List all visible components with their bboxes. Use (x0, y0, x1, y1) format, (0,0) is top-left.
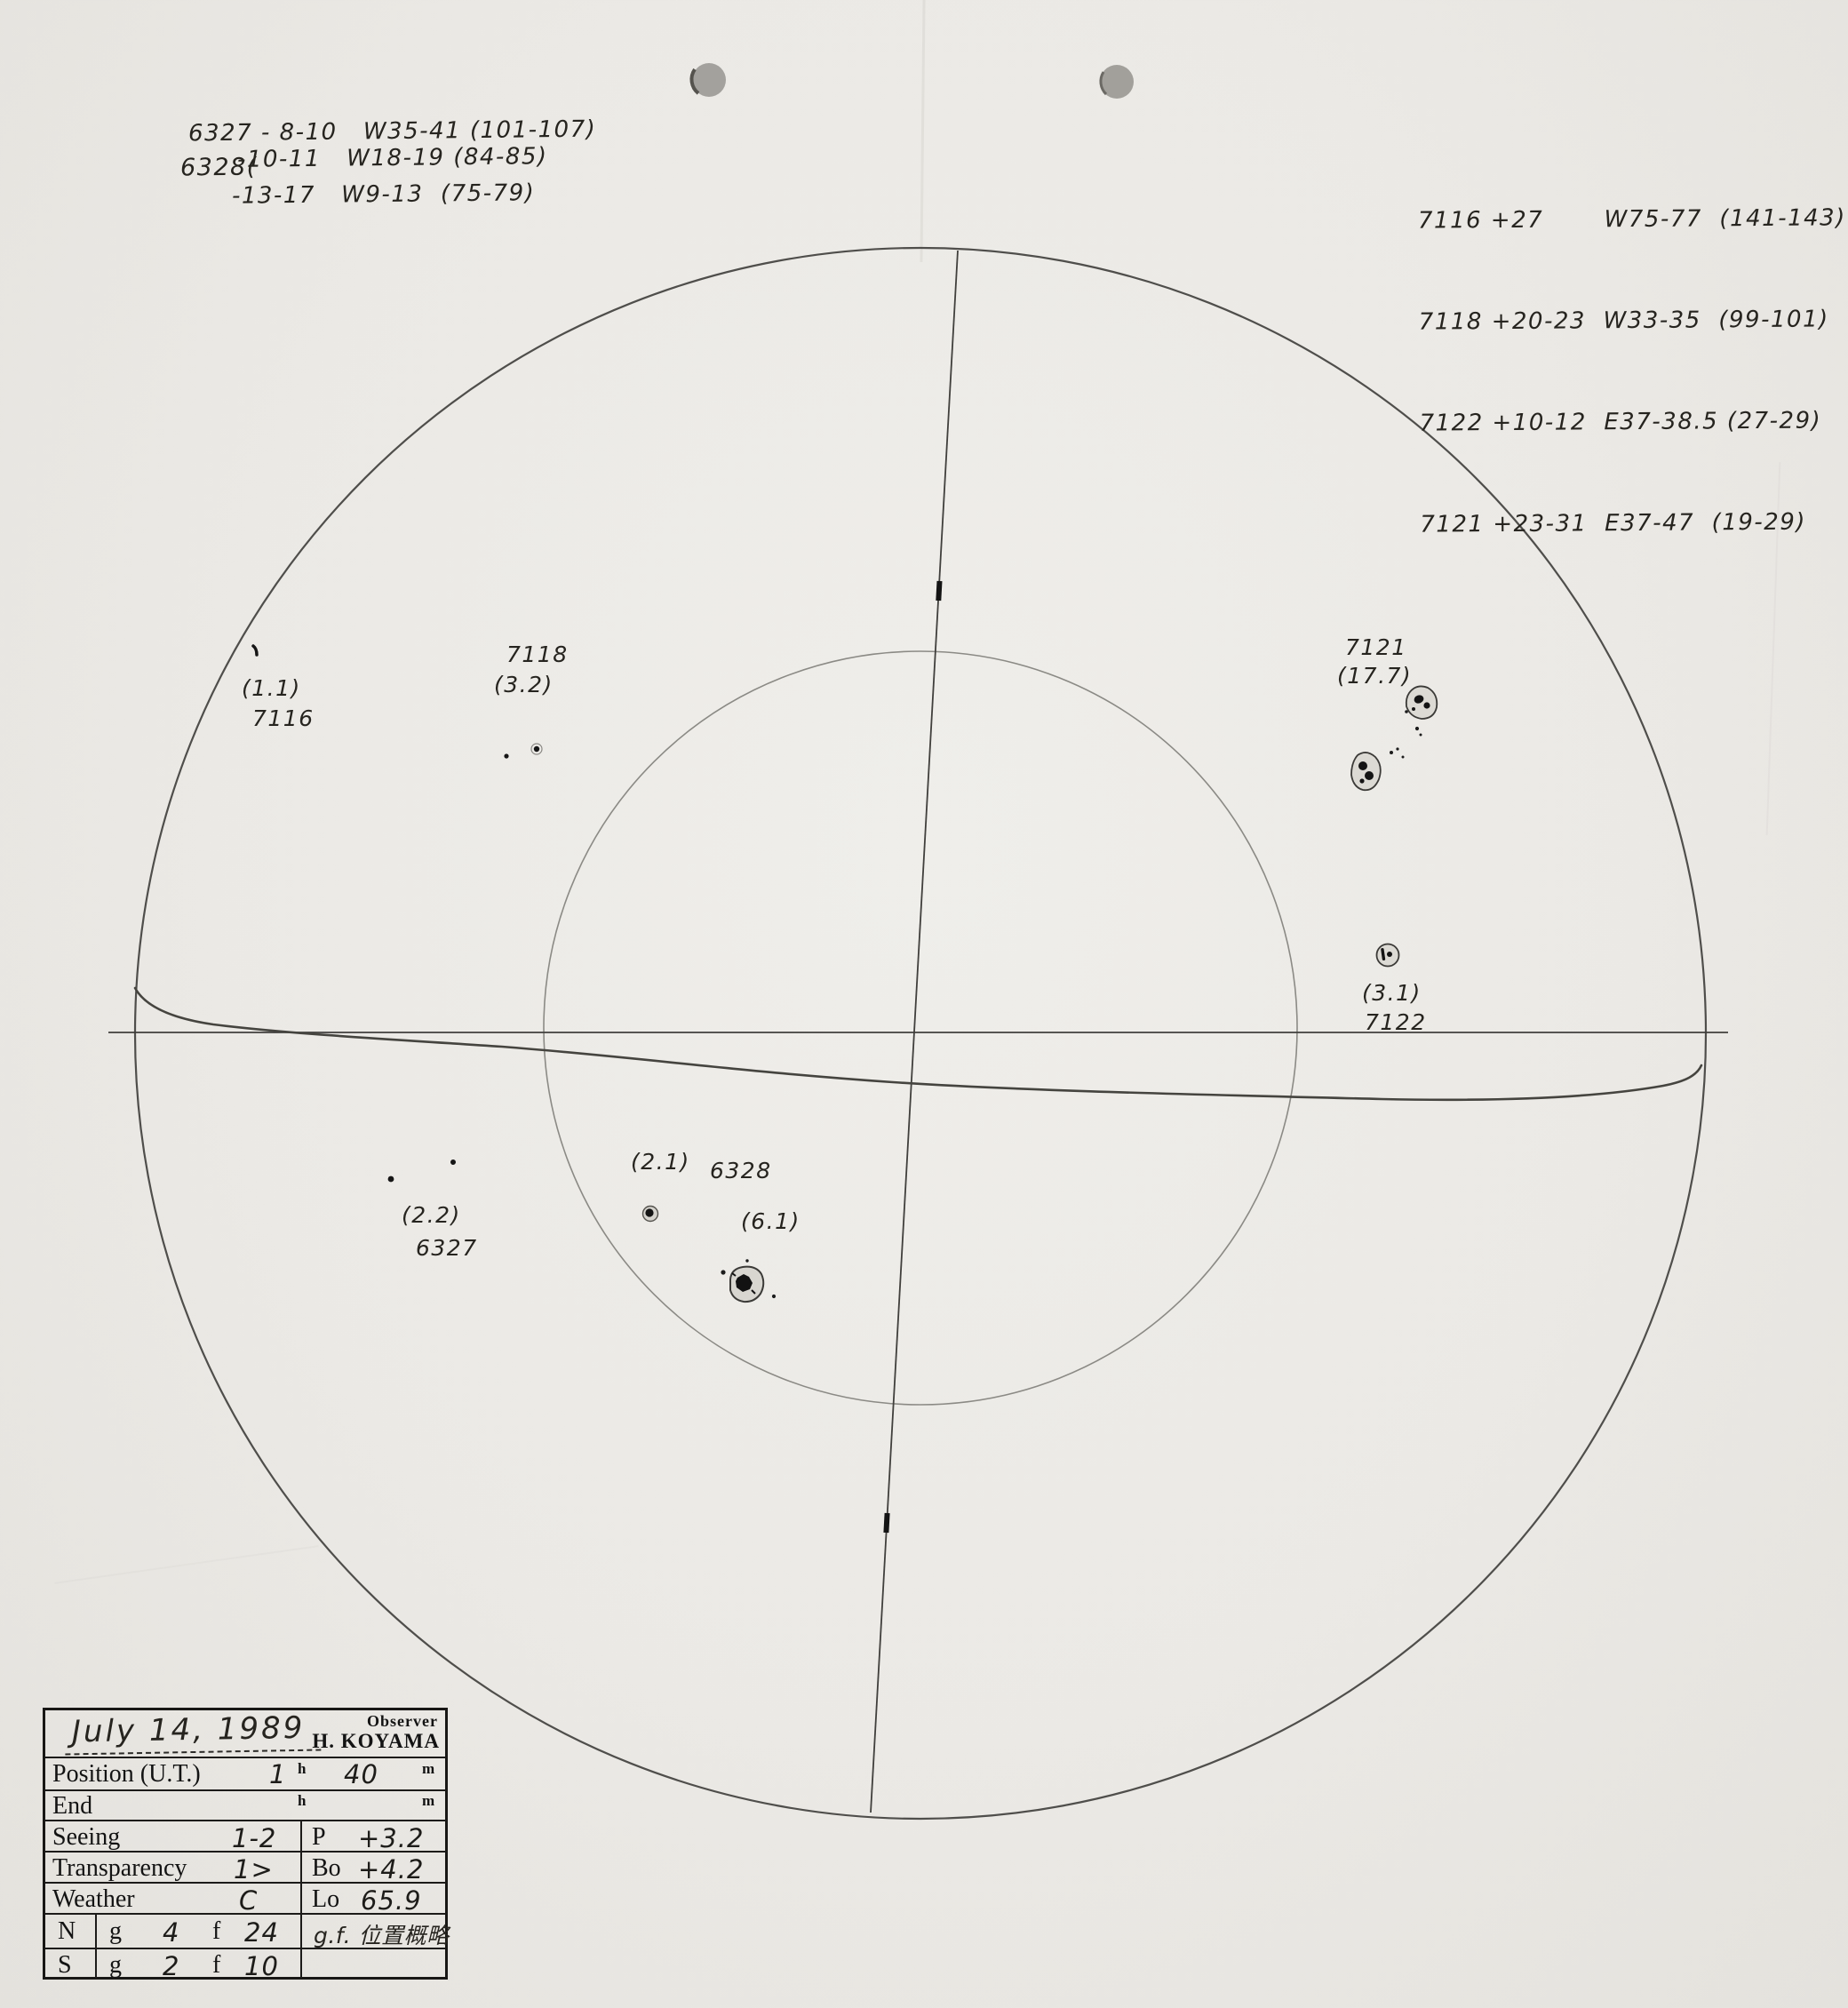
sunspot-group-7118 (504, 744, 542, 759)
observer-name: H. KOYAMA (312, 1730, 440, 1753)
sunspot-group-7121 (1351, 686, 1437, 790)
table-row-south: S g 2 f 10 (45, 1948, 445, 1979)
table-row-weather: Weather C Lo 65.9 (45, 1882, 445, 1913)
date-value: July 14, 1989 (65, 1709, 322, 1755)
table-row-transparency: Transparency 1> Bo +4.2 (45, 1851, 445, 1882)
inner-grid-circle (544, 651, 1297, 1405)
meridian-tick-upper (938, 581, 939, 601)
lo-value: 65.9 (361, 1885, 422, 1916)
end-label: End (52, 1792, 92, 1821)
annotation-line-7118: 7118 +20-23 W33-35 (99-101) (1419, 302, 1847, 339)
spot-id-6328: 6328 (710, 1158, 772, 1183)
table-row-seeing: Seeing 1-2 P +3.2 (45, 1820, 445, 1851)
south-g-label: g (109, 1951, 122, 1980)
spot-id-7121: 7121 (1345, 634, 1407, 660)
south-f-label: f (212, 1951, 220, 1980)
observer-label: Observer (367, 1712, 438, 1731)
spot-count-6327: (2.2) (402, 1202, 461, 1228)
transparency-label: Transparency (52, 1854, 187, 1883)
north-g-value: 4 (163, 1917, 179, 1948)
spot-id-7122: 7122 (1365, 1009, 1427, 1035)
top-right-annotation: 7116 +27 W75-77 (141-143) 7118 +20-23 W3… (1417, 133, 1848, 575)
north-f-label: f (212, 1917, 220, 1946)
weather-label: Weather (52, 1885, 135, 1914)
scanned-sunspot-observation-sheet: { "annotations": { "top_left": { "line1"… (0, 0, 1848, 2008)
meridian-line (871, 251, 958, 1813)
spot-count-7122: (3.1) (1362, 980, 1422, 1006)
position-hour-value: 1 (269, 1759, 286, 1789)
table-row-date: July 14, 1989 Observer H. KOYAMA (45, 1710, 445, 1757)
end-hour-unit: h (298, 1792, 306, 1810)
table-row-end: End h m (45, 1789, 445, 1820)
north-label: N (58, 1917, 76, 1946)
position-label: Position (U.T.) (52, 1760, 201, 1789)
p-label: P (312, 1823, 326, 1852)
annotation-line-6328b: -13-17 W9-13 (75-79) (232, 175, 536, 215)
bo-label: Bo (312, 1854, 341, 1883)
sunspot-group-7122 (1377, 944, 1399, 967)
sunspot-group-7116 (253, 646, 257, 655)
end-minute-unit: m (422, 1792, 434, 1810)
spot-id-7116: 7116 (252, 705, 315, 731)
lo-label: Lo (312, 1885, 339, 1914)
table-divider-main (300, 1820, 302, 1979)
sunspot-group-6327 (388, 1159, 456, 1182)
minute-unit: m (422, 1760, 434, 1778)
spot-id-7118: 7118 (506, 641, 569, 667)
gf-note: g.f. 位置概略 (314, 1918, 450, 1950)
seeing-label: Seeing (52, 1823, 120, 1852)
spot-count2-6328: (6.1) (741, 1208, 801, 1234)
spot-count-7116: (1.1) (242, 675, 301, 701)
annotation-line-7122: 7122 +10-12 E37-38.5 (27-29) (1419, 403, 1847, 440)
south-label: S (58, 1951, 72, 1980)
spot-count-7121: (17.7) (1337, 663, 1412, 689)
table-divider-ns (95, 1913, 97, 1979)
position-minute-value: 40 (344, 1759, 378, 1789)
annotation-line-6328a: -10-11 W18-19 (84-85) (237, 139, 548, 179)
table-row-position: Position (U.T.) 1 h 40 m (45, 1757, 445, 1789)
spot-count-7118: (3.2) (494, 672, 554, 697)
weather-value: C (239, 1885, 258, 1916)
meridian-tick-lower (886, 1513, 887, 1533)
north-f-value: 24 (244, 1917, 279, 1948)
annotation-line-7116: 7116 +27 W75-77 (141-143) (1418, 201, 1846, 237)
equator-curve (135, 988, 1701, 1100)
punch-hole-left (691, 63, 726, 97)
spot-id-6327: 6327 (416, 1235, 478, 1261)
table-row-north: N g 4 f 24 g.f. 位置概略 (45, 1913, 445, 1948)
annotation-line-7121: 7121 +23-31 E37-47 (19-29) (1420, 505, 1848, 541)
hour-unit: h (298, 1760, 306, 1778)
north-g-label: g (109, 1917, 122, 1946)
spot-count-6328: (2.1) (631, 1149, 690, 1175)
south-f-value: 10 (244, 1951, 279, 1981)
bo-value: +4.2 (358, 1854, 424, 1884)
p-value: +3.2 (358, 1823, 424, 1853)
transparency-value: 1> (234, 1854, 274, 1884)
south-g-value: 2 (163, 1951, 179, 1981)
punch-hole-right (1100, 65, 1134, 99)
seeing-value: 1-2 (232, 1823, 276, 1853)
observation-table: July 14, 1989 Observer H. KOYAMA Positio… (43, 1708, 448, 1980)
